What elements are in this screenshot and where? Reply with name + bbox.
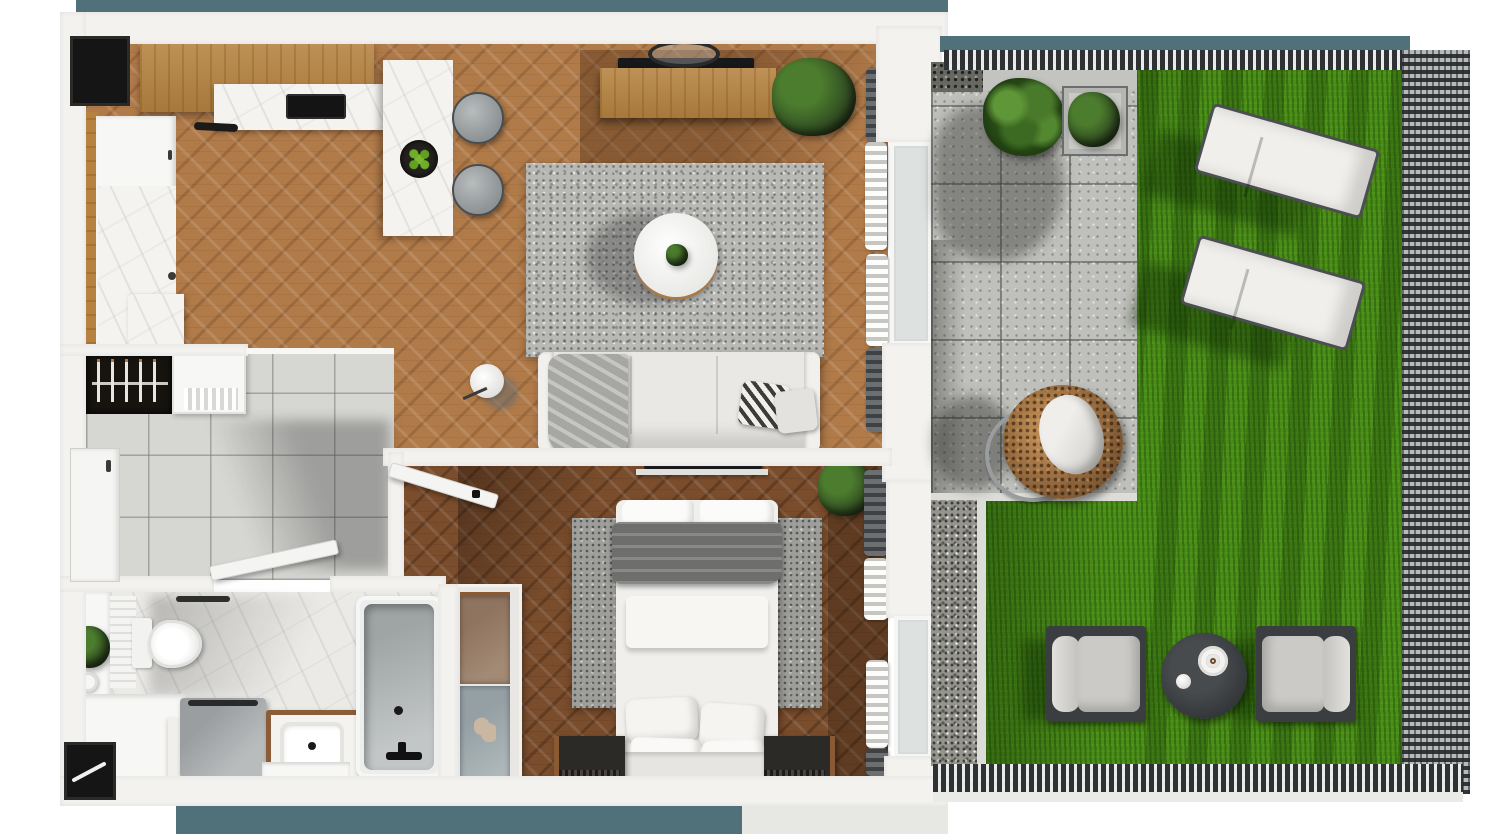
bottom-wall <box>60 776 948 806</box>
washing-machine-handle <box>188 700 258 706</box>
entrance-door <box>70 448 120 582</box>
wardrobe-shoes <box>474 716 496 742</box>
ceiling-lamp <box>648 40 720 68</box>
coat-hanger <box>153 362 156 402</box>
bed-base <box>610 752 782 778</box>
bedroom-wall-upper-right <box>886 480 934 618</box>
cabinet-handle <box>168 272 176 280</box>
bedroom-tv-shelf <box>636 469 768 475</box>
fence-right <box>1402 50 1470 794</box>
coat-hanger <box>111 362 114 402</box>
bedroom-curtain-white <box>866 660 888 748</box>
towel-bar <box>176 596 230 602</box>
bedroom-window <box>894 616 932 758</box>
fence-bottom <box>933 764 1463 792</box>
living-curtain-white <box>866 254 888 346</box>
divider-wall <box>383 448 892 466</box>
cabinet-handle <box>168 150 172 160</box>
garden-big-plant <box>983 78 1065 156</box>
decor-ball <box>1176 674 1191 689</box>
plain-pillow <box>774 388 819 435</box>
cooktop <box>286 94 346 119</box>
bathroom-top-wall-right <box>330 576 446 592</box>
bed-runner-blanket <box>612 522 782 584</box>
floor-threshold <box>246 348 394 354</box>
hallway-top-wall <box>60 344 248 356</box>
bathtub-drain <box>394 706 403 715</box>
bar-stool-1 <box>452 92 504 144</box>
apples <box>406 146 432 172</box>
sofa-throw-blanket <box>548 354 628 452</box>
wardrobe-glass-top <box>460 592 510 684</box>
floor-plan-render <box>0 0 1500 837</box>
gravel-curb <box>977 500 986 766</box>
coat-hanger <box>97 362 100 402</box>
left-wall <box>60 12 86 806</box>
living-plant <box>772 58 856 136</box>
bedroom-curtain-dark <box>864 470 888 556</box>
washing-machine <box>180 698 266 778</box>
round-side-table <box>1161 633 1247 719</box>
fence-bottom-curb <box>933 792 1463 802</box>
coat-hanger <box>125 362 128 402</box>
top-wall <box>60 12 948 44</box>
bedroom-door-handle <box>472 490 480 498</box>
duvet-fold <box>626 596 768 648</box>
exterior-wall-bottom <box>176 806 742 834</box>
armchair-left-back-cushion <box>1052 636 1080 712</box>
gravel-strip <box>931 500 979 766</box>
living-window <box>890 142 932 345</box>
service-shaft-top <box>70 36 130 106</box>
lawn-left-shadow <box>975 480 1145 770</box>
wardrobe-rail <box>92 382 168 385</box>
sink-drain <box>308 742 316 750</box>
coffee-cup <box>1206 654 1220 668</box>
tv-console <box>600 68 776 118</box>
entrance-door-handle <box>106 460 111 472</box>
coat-hanger <box>139 362 142 402</box>
armchair-right-seat-cushion <box>1262 636 1324 712</box>
sofa-seam <box>716 356 718 434</box>
kitchen-end-counter <box>128 294 184 346</box>
planter-plant <box>1068 92 1120 147</box>
exterior-wall-bottom-light <box>742 806 948 834</box>
armchair-left-seat-cushion <box>1078 636 1140 712</box>
bathtub-faucet-spout <box>398 742 406 760</box>
bedroom-curtain-white <box>864 558 888 620</box>
shoe-cabinet-slats <box>184 388 238 410</box>
armchair-right-back-cushion <box>1322 636 1350 712</box>
bar-stool-2 <box>452 164 504 216</box>
living-curtain-white <box>865 142 887 250</box>
bathroom-bedroom-wall <box>438 584 458 806</box>
fence-top <box>944 50 1408 70</box>
sofa-seam <box>630 356 632 434</box>
coffee-table-plant <box>666 244 688 266</box>
